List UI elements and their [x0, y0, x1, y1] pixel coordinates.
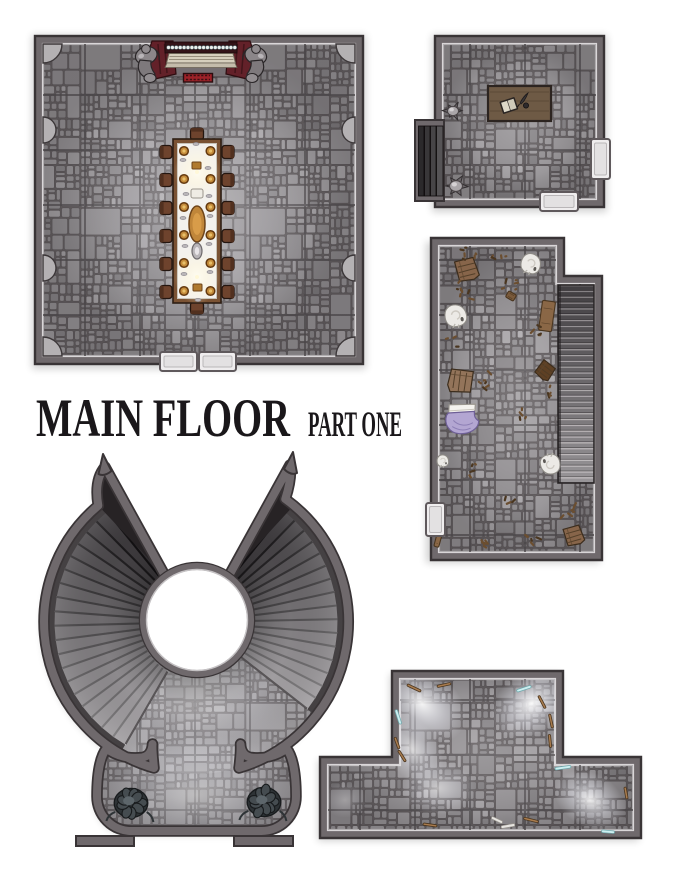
- svg-text:PART ONE: PART ONE: [308, 404, 402, 444]
- svg-text:MAIN FLOOR: MAIN FLOOR: [36, 388, 291, 448]
